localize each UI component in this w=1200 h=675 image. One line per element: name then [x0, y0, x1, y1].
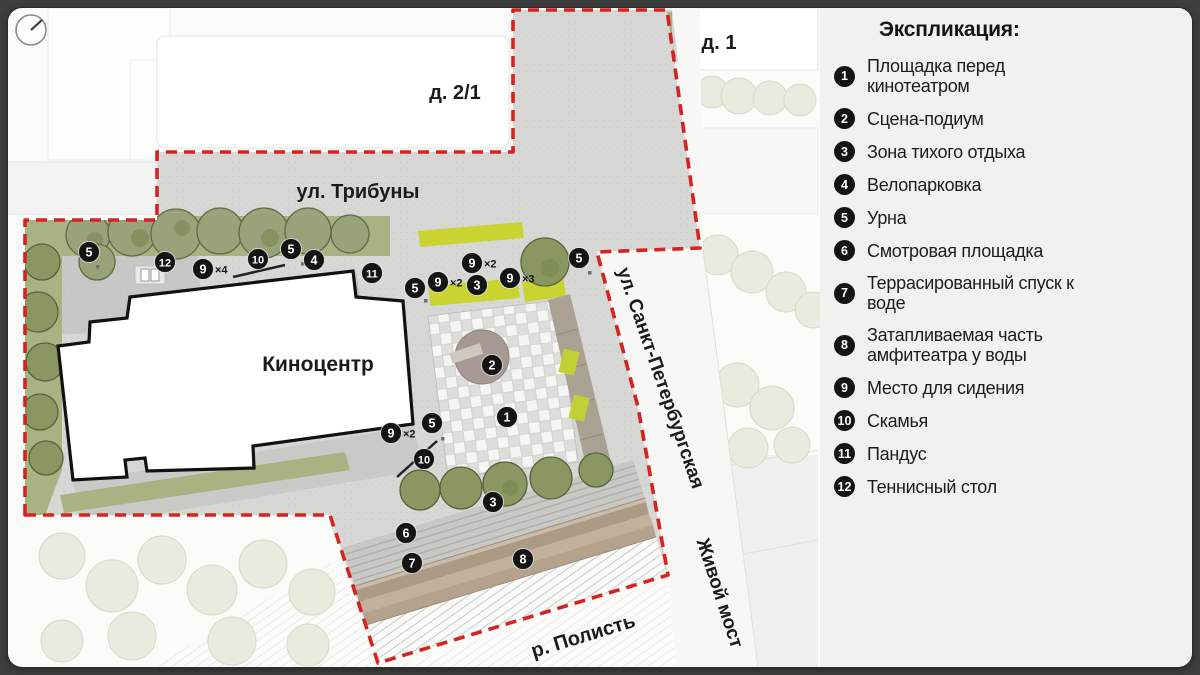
legend-item-label: Зона тихого отдыха	[867, 142, 1025, 162]
svg-text:5: 5	[412, 282, 419, 296]
site-plan-svg: ул. Трибуныд. 2/1д. 1Киноцентрул. Санкт-…	[8, 8, 820, 667]
svg-text:9: 9	[200, 263, 207, 277]
legend-list: 1Площадка перед кинотеатром2Сцена-подиум…	[834, 56, 1184, 497]
legend-item-label: Пандус	[867, 444, 926, 464]
legend-item-label: Сцена-подиум	[867, 109, 984, 129]
legend-item-2: 2Сцена-подиум	[834, 108, 1184, 129]
svg-text:9: 9	[388, 427, 395, 441]
legend-item-label: Затапливаемая часть амфитеатра у воды	[867, 325, 1082, 365]
marker-multiplier: ×4	[215, 265, 228, 277]
legend-item-label: Смотровая площадка	[867, 241, 1043, 261]
svg-text:5: 5	[576, 252, 583, 266]
svg-text:7: 7	[409, 557, 416, 571]
map-marker-5: 5	[422, 413, 443, 434]
svg-text:10: 10	[252, 255, 264, 267]
svg-text:12: 12	[159, 258, 171, 270]
map-marker-1: 1	[497, 407, 518, 428]
map-label-house-2-1: д. 2/1	[429, 82, 481, 104]
legend-item-1: 1Площадка перед кинотеатром	[834, 56, 1184, 96]
svg-text:10: 10	[418, 455, 430, 467]
legend-item-label: Велопарковка	[867, 175, 981, 195]
legend-item-label: Террасированный спуск к воде	[867, 273, 1082, 313]
marker-multiplier: ×2	[403, 429, 416, 441]
legend-item-number-badge: 8	[834, 335, 855, 356]
legend-item-number-badge: 3	[834, 141, 855, 162]
legend-item-label: Скамья	[867, 411, 928, 431]
legend-item-number-badge: 4	[834, 174, 855, 195]
map-marker-5: 5	[281, 239, 302, 260]
svg-text:6: 6	[403, 527, 410, 541]
svg-text:2: 2	[489, 359, 496, 373]
svg-text:5: 5	[288, 243, 295, 257]
map-marker-10: 10	[248, 249, 269, 270]
legend-item-label: Теннисный стол	[867, 477, 997, 497]
legend-item-label: Площадка перед кинотеатром	[867, 56, 1082, 96]
legend-item-number-badge: 11	[834, 443, 855, 464]
svg-text:11: 11	[366, 269, 378, 281]
map-label-street-tribuny: ул. Трибуны	[296, 181, 419, 203]
legend-item-label: Урна	[867, 208, 906, 228]
svg-text:1: 1	[504, 411, 511, 425]
svg-text:5: 5	[86, 246, 93, 260]
map-marker-3: 3	[467, 275, 488, 296]
svg-text:4: 4	[311, 254, 318, 268]
svg-text:3: 3	[490, 496, 497, 510]
legend-item-number-badge: 1	[834, 66, 855, 87]
svg-text:5: 5	[429, 417, 436, 431]
map-marker-4: 4	[304, 250, 325, 271]
map-marker-10: 10	[414, 449, 435, 470]
map-marker-5: 5	[79, 242, 100, 263]
svg-text:9: 9	[507, 272, 514, 286]
plan-card: ул. Трибуныд. 2/1д. 1Киноцентрул. Санкт-…	[8, 8, 1192, 667]
map-marker-2: 2	[482, 355, 503, 376]
map-marker-6: 6	[396, 523, 417, 544]
tennis-table	[151, 269, 159, 281]
legend-item-number-badge: 10	[834, 410, 855, 431]
compass-icon	[16, 15, 46, 45]
map-marker-3: 3	[483, 492, 504, 513]
screenshot-root: { "colors":{ "frame":"#3e3e3e","card":"#…	[0, 0, 1200, 675]
map-marker-7: 7	[402, 553, 423, 574]
legend-item-7: 7Террасированный спуск к воде	[834, 273, 1184, 313]
map-marker-5: 5	[569, 248, 590, 269]
site-plan-map: ул. Трибуныд. 2/1д. 1Киноцентрул. Санкт-…	[8, 8, 820, 667]
tennis-table	[141, 269, 149, 281]
legend-item-12: 12Теннисный стол	[834, 476, 1184, 497]
svg-text:9: 9	[469, 257, 476, 271]
map-marker-5: 5	[405, 278, 426, 299]
map-label-house-1: д. 1	[702, 32, 737, 54]
marker-multiplier: ×3	[522, 274, 535, 286]
legend-item-3: 3Зона тихого отдыха	[834, 141, 1184, 162]
legend-item-number-badge: 2	[834, 108, 855, 129]
svg-text:3: 3	[474, 279, 481, 293]
legend-item-9: 9Место для сидения	[834, 377, 1184, 398]
legend-item-number-badge: 6	[834, 240, 855, 261]
legend-item-4: 4Велопарковка	[834, 174, 1184, 195]
legend-item-11: 11Пандус	[834, 443, 1184, 464]
legend-item-number-badge: 7	[834, 283, 855, 304]
map-label-building-kinocentr: Киноцентр	[262, 353, 374, 376]
map-marker-8: 8	[513, 549, 534, 570]
legend-item-6: 6Смотровая площадка	[834, 240, 1184, 261]
legend-item-number-badge: 9	[834, 377, 855, 398]
svg-text:8: 8	[520, 553, 527, 567]
map-marker-12: 12	[155, 252, 176, 273]
legend-item-label: Место для сидения	[867, 378, 1024, 398]
marker-multiplier: ×2	[450, 278, 463, 290]
legend-item-number-badge: 5	[834, 207, 855, 228]
legend-title: Экспликация:	[879, 18, 1184, 42]
legend-item-number-badge: 12	[834, 476, 855, 497]
map-marker-11: 11	[362, 263, 383, 284]
legend-item-10: 10Скамья	[834, 410, 1184, 431]
marker-multiplier: ×2	[484, 259, 497, 271]
svg-text:9: 9	[435, 276, 442, 290]
legend-item-8: 8Затапливаемая часть амфитеатра у воды	[834, 325, 1184, 365]
legend-item-5: 5Урна	[834, 207, 1184, 228]
legend-panel: Экспликация: 1Площадка перед кинотеатром…	[820, 8, 1192, 667]
